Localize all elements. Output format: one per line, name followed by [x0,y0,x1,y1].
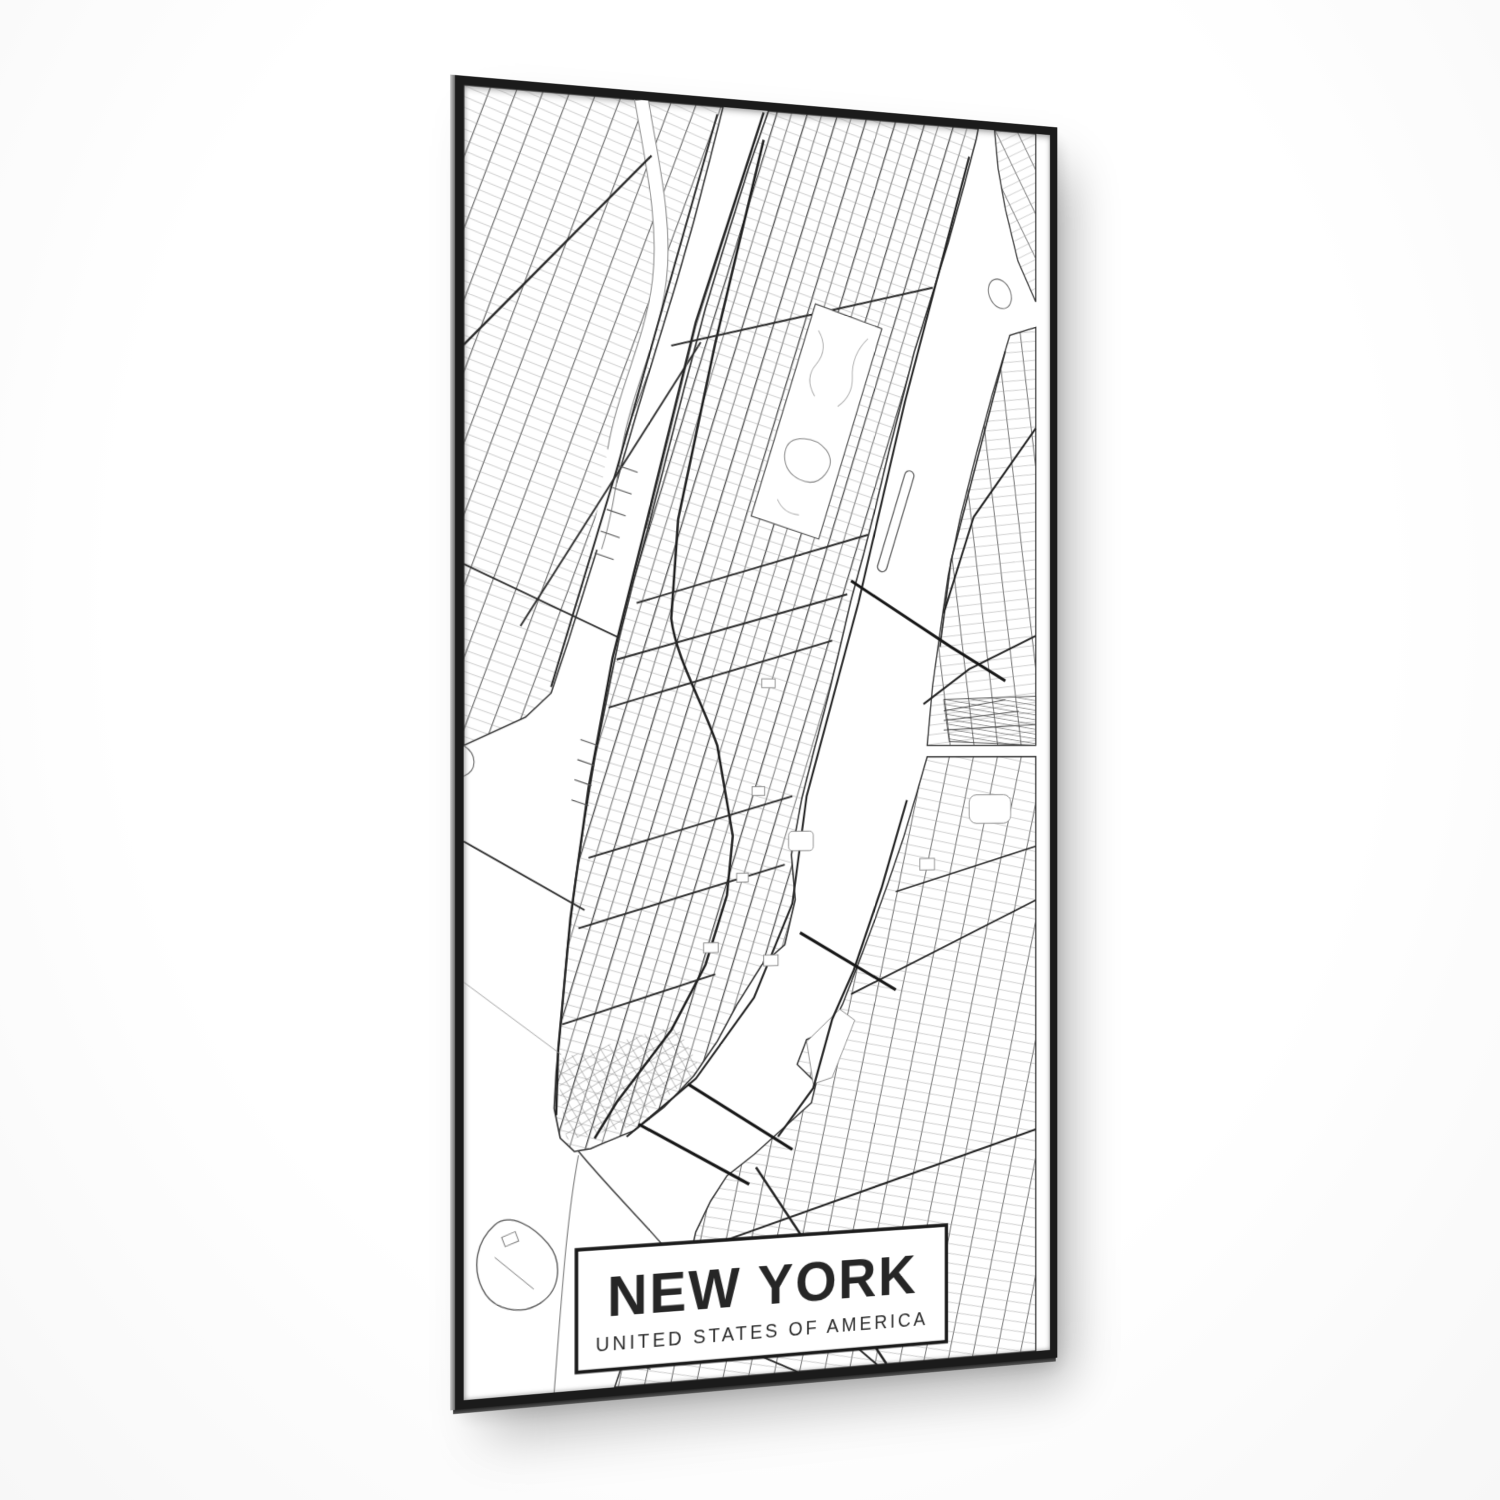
roosevelt-island [876,470,915,573]
ferry-route [464,979,562,1059]
sunnyside-rail-yard [944,696,1036,746]
bronx-area [984,129,1036,314]
map-poster: NEW YORK UNITED STATES OF AMERICA [464,85,1050,1401]
randalls-island [984,276,1016,313]
governors-island [477,1217,558,1313]
new-york-city-map: NEW YORK UNITED STATES OF AMERICA [464,85,1050,1401]
stuyvesant-town [789,831,814,851]
framed-wall-art: NEW YORK UNITED STATES OF AMERICA [455,75,1057,1410]
park-patch [920,858,935,870]
cemetery-patch [969,795,1011,824]
liberty-island [464,746,474,777]
holland-tunnel [464,840,585,913]
queens-area [923,321,1035,746]
product-photo: NEW YORK UNITED STATES OF AMERICA [0,0,1500,1500]
